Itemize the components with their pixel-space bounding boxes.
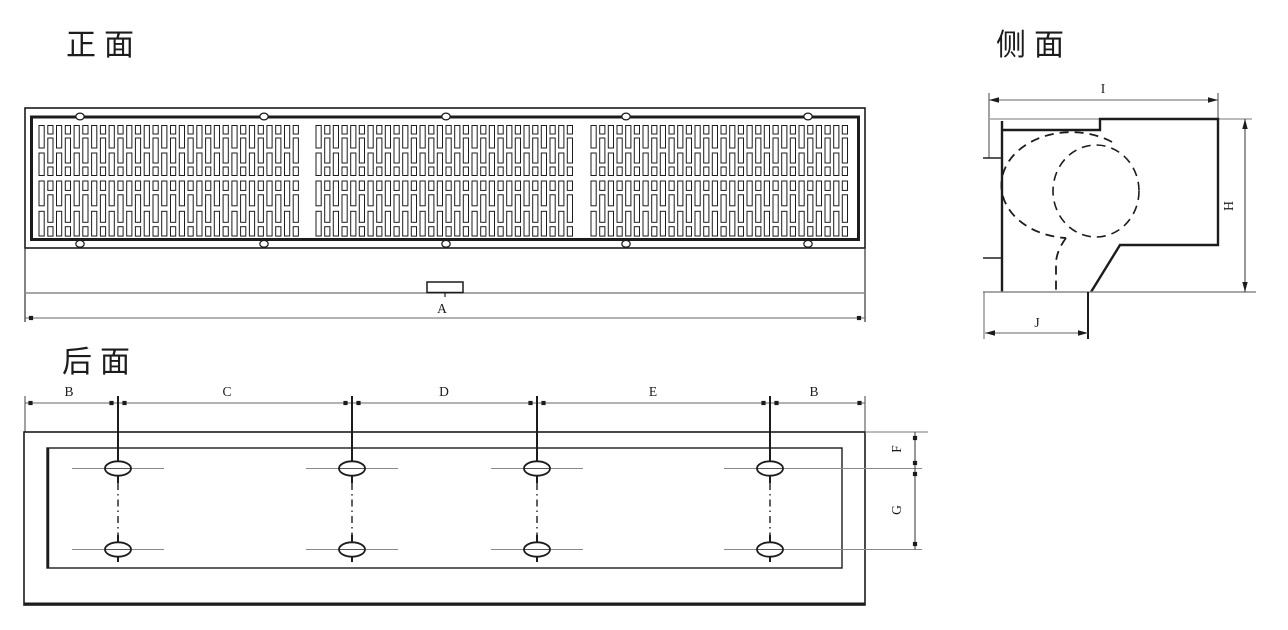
grille-slot [437, 181, 442, 206]
grille-slot [109, 153, 114, 176]
dim-tick [356, 401, 360, 405]
grille-slot [144, 126, 149, 149]
grille-slot [83, 195, 88, 223]
grille-slot [782, 153, 787, 176]
grille-slot [600, 126, 605, 135]
grille-slot [127, 126, 132, 149]
grille-slot [65, 227, 70, 236]
grille-slot [359, 126, 364, 135]
grille-slot [550, 227, 555, 236]
grille-slot [730, 153, 735, 176]
grille-slot [214, 181, 219, 206]
grille-slot [293, 167, 298, 176]
grille-slot [394, 138, 399, 163]
grille-slot [738, 167, 743, 176]
grille-slot [463, 126, 468, 135]
grille-slot [455, 211, 460, 236]
grille-slot [144, 211, 149, 236]
grille-slot [591, 211, 596, 236]
grille-slot [782, 181, 787, 206]
grille-slot [162, 181, 167, 206]
dim-A-label: A [437, 301, 447, 316]
grille-slot [118, 195, 123, 223]
grille-slot [241, 227, 246, 236]
grille-slot [403, 153, 408, 176]
grille-slot [377, 181, 382, 190]
grille-slot [276, 126, 281, 135]
dim-tick [913, 436, 917, 440]
grille-slot [83, 227, 88, 236]
grille-slot [773, 126, 778, 135]
grille-slot [258, 167, 263, 176]
grille-slot [747, 126, 752, 149]
side-impeller-dashed [1053, 145, 1139, 237]
grille-slot [188, 181, 193, 190]
grille-slot [118, 138, 123, 163]
grille-slot [704, 227, 709, 236]
grille-slot [704, 138, 709, 163]
grille-slot [232, 181, 237, 206]
grille-slot [533, 181, 538, 190]
technical-drawing-svg: 正面 A 侧面 I [0, 0, 1288, 630]
grille-slot [834, 181, 839, 206]
grille-slot [626, 181, 631, 206]
grille-slot [738, 227, 743, 236]
grille-slot [394, 227, 399, 236]
grille-slot [541, 153, 546, 176]
grille-slot [144, 181, 149, 206]
dim-J: J [984, 292, 1088, 339]
grille-slot [507, 211, 512, 236]
grille-slot [600, 195, 605, 223]
grille-slot [206, 126, 211, 135]
side-body-outline [1002, 119, 1218, 292]
grille-slot [241, 167, 246, 176]
grille-slot [258, 181, 263, 190]
grille-slot [825, 167, 830, 176]
grille-slot [437, 126, 442, 149]
grille-slot [74, 126, 79, 149]
grille-slot [626, 211, 631, 236]
grille-slot [285, 211, 290, 236]
grille-slot [342, 195, 347, 223]
grille-slot [57, 126, 62, 149]
grille-slot [712, 126, 717, 149]
grille-slot [816, 181, 821, 206]
grille-slot [223, 181, 228, 190]
grille-slot [721, 195, 726, 223]
grille-slot [591, 181, 596, 206]
screw-hole [442, 113, 450, 120]
grille-slot [241, 138, 246, 163]
grille-slot [721, 167, 726, 176]
front-sensor-box [427, 282, 463, 293]
back-mounting-holes [72, 396, 922, 562]
grille-slot [429, 181, 434, 190]
grille-slot [153, 195, 158, 223]
grille-slot [411, 195, 416, 223]
grille-slot [127, 211, 132, 236]
grille-slot [481, 227, 486, 236]
grille-slot [695, 181, 700, 206]
grille-slot [446, 138, 451, 163]
grille-slot [446, 195, 451, 223]
side-outlet-dashed [1056, 238, 1066, 292]
grille-slot [446, 181, 451, 190]
grille-slot [498, 138, 503, 163]
grille-slot [197, 126, 202, 149]
grille-slot [678, 211, 683, 236]
grille-slot [481, 138, 486, 163]
grille-slot [223, 227, 228, 236]
grille-slot [808, 126, 813, 135]
grille-slot [825, 181, 830, 190]
dim-A: A [25, 301, 865, 318]
grille-slot [188, 227, 193, 236]
back-inner-panel [47, 448, 842, 568]
grille-slot [48, 195, 53, 223]
grille-slot [39, 211, 44, 236]
grille-slot [660, 181, 665, 206]
grille-slot [669, 138, 674, 163]
grille-slot [481, 181, 486, 190]
grille-slot [704, 195, 709, 223]
grille-slot [223, 195, 228, 223]
grille-slot [135, 138, 140, 163]
grille-slot [276, 167, 281, 176]
grille-slot [816, 153, 821, 176]
grille-slot [359, 181, 364, 190]
grille-slot [377, 167, 382, 176]
grille-slot [712, 181, 717, 206]
grille-slot [188, 138, 193, 163]
screw-hole [622, 113, 630, 120]
grille-slot [109, 126, 114, 149]
grille-slot [799, 181, 804, 206]
grille-slot [359, 167, 364, 176]
grille-slot [481, 195, 486, 223]
grille-slot [730, 126, 735, 149]
grille-slot [686, 195, 691, 223]
grille-slot [403, 181, 408, 206]
grille-slot [368, 153, 373, 176]
grille-slot [730, 211, 735, 236]
grille-slot [118, 227, 123, 236]
grille-slot [394, 126, 399, 135]
grille-slot [293, 181, 298, 190]
grille-slot [773, 181, 778, 190]
dim-F-label: F [889, 445, 904, 453]
grille-slot [704, 181, 709, 190]
grille-slot [325, 138, 330, 163]
grille-slot [368, 211, 373, 236]
grille-slot [834, 211, 839, 236]
grille-slot [463, 195, 468, 223]
grille-slot [455, 126, 460, 149]
grille-slot [498, 181, 503, 190]
grille-slot [472, 126, 477, 149]
grille-slot [591, 126, 596, 149]
grille-slot [135, 227, 140, 236]
grille-slot [626, 153, 631, 176]
grille-slot [790, 195, 795, 223]
grille-slot [342, 126, 347, 135]
grille-slot [57, 181, 62, 206]
grille-slot [206, 138, 211, 163]
grille-slot [135, 167, 140, 176]
grille-slot [617, 181, 622, 190]
grille-slot [92, 126, 97, 149]
grille-slot [276, 195, 281, 223]
grille-slot [799, 153, 804, 176]
grille-slot [686, 167, 691, 176]
grille-slot [316, 181, 321, 206]
grille-slot [206, 227, 211, 236]
dim-J-label: J [1034, 315, 1039, 330]
grille-slot [267, 153, 272, 176]
grille-slot [669, 195, 674, 223]
grille-slot [686, 138, 691, 163]
grille-slot [92, 153, 97, 176]
grille-slot [533, 126, 538, 135]
grille-slot [660, 153, 665, 176]
grille-slot [74, 181, 79, 206]
grille-slot [206, 181, 211, 190]
grille-slot [808, 138, 813, 163]
grille-slot [162, 153, 167, 176]
grille-slot [515, 227, 520, 236]
dimension-dots [28, 316, 917, 546]
grille-slot [92, 181, 97, 206]
grille-slot [65, 195, 70, 223]
grille-slot [223, 138, 228, 163]
grille-slot [377, 227, 382, 236]
grille-slot [608, 153, 613, 176]
grille-slot [550, 181, 555, 190]
back-view: 后面 B C D E B F G [24, 346, 928, 605]
grille-slot [342, 138, 347, 163]
grille-slot [429, 126, 434, 135]
grille-slot [258, 195, 263, 223]
grille-slot [591, 153, 596, 176]
grille-slot [816, 211, 821, 236]
grille-slot [704, 167, 709, 176]
grille-slot [83, 167, 88, 176]
grille-slot [533, 167, 538, 176]
grille-slot [232, 126, 237, 149]
grille-slot [678, 153, 683, 176]
grille-slot [773, 195, 778, 223]
grille-slot [782, 211, 787, 236]
grille-slot [808, 167, 813, 176]
grille-slot [747, 211, 752, 236]
grille-slot [429, 195, 434, 223]
grille-slot [223, 126, 228, 135]
grille-slot [127, 153, 132, 176]
grille-slot [515, 167, 520, 176]
grille-slot [567, 227, 572, 236]
grille-slot [153, 138, 158, 163]
grille-slot [472, 181, 477, 206]
grille-slot [764, 181, 769, 206]
grille-slot [463, 138, 468, 163]
grille-slot [249, 181, 254, 206]
grille-slot [377, 195, 382, 223]
grille-slot [197, 153, 202, 176]
grille-slot [48, 126, 53, 135]
drawing-canvas: 正面 A 侧面 I [0, 0, 1288, 630]
grille-slot [214, 153, 219, 176]
grille-slot [100, 227, 105, 236]
grille-slot [394, 181, 399, 190]
grille-slot [57, 211, 62, 236]
grille-slot [325, 181, 330, 190]
grille-slot [756, 195, 761, 223]
grille-slot [74, 153, 79, 176]
grille-slot [515, 181, 520, 190]
grille-slot [773, 227, 778, 236]
grille-slot [342, 167, 347, 176]
grille-slot [617, 138, 622, 163]
grille-slot [669, 181, 674, 190]
grille-slot [65, 126, 70, 135]
dim-H-arrow-bottom [1242, 282, 1247, 292]
grille-slot [48, 167, 53, 176]
grille-slot [652, 167, 657, 176]
grille-slot [498, 227, 503, 236]
grille-slot [842, 195, 847, 223]
grille-slot [825, 227, 830, 236]
grille-slot [171, 195, 176, 223]
grille-slot [333, 153, 338, 176]
grille-slot [394, 167, 399, 176]
grille-slot [773, 167, 778, 176]
side-view-title: 侧面 [996, 29, 1072, 62]
dim-tick [541, 401, 545, 405]
grille-slot [325, 227, 330, 236]
grille-slot [834, 153, 839, 176]
grille-slot [385, 181, 390, 206]
side-view: 侧面 I H [983, 29, 1256, 339]
grille-slot [842, 227, 847, 236]
grille-slot [643, 126, 648, 149]
grille-slot [285, 126, 290, 149]
grille-slot [489, 153, 494, 176]
grille-slot [420, 153, 425, 176]
grille-slot [704, 126, 709, 135]
grille-slot [634, 227, 639, 236]
grille-slot [258, 138, 263, 163]
grille-slot [74, 211, 79, 236]
dim-tick [913, 461, 917, 465]
grille-slot [316, 153, 321, 176]
grille-slot [507, 153, 512, 176]
grille-slot [333, 181, 338, 206]
grille-slot [559, 153, 564, 176]
grille-slot [249, 211, 254, 236]
grille-slot [179, 211, 184, 236]
dim-tick [857, 401, 861, 405]
back-outer-panel [24, 432, 865, 605]
grille-slot [437, 153, 442, 176]
grille-slot [617, 167, 622, 176]
grille-slot [118, 181, 123, 190]
grille-slot [515, 138, 520, 163]
grille-slot [179, 181, 184, 206]
grille-slot [643, 153, 648, 176]
dim-tick [29, 316, 33, 320]
grille-slot [652, 227, 657, 236]
grille-slot [600, 167, 605, 176]
grille-slot [293, 138, 298, 163]
grille-slot [764, 126, 769, 149]
dim-E-label: E [649, 384, 657, 399]
grille-slot [489, 181, 494, 206]
grille-slot [686, 126, 691, 135]
dim-I-label: I [1101, 81, 1106, 96]
grille-slot [617, 227, 622, 236]
grille-slot [634, 138, 639, 163]
grille-slot [489, 126, 494, 149]
grille-slot [359, 227, 364, 236]
grille-slot [197, 211, 202, 236]
grille-slot [351, 126, 356, 149]
dim-G-label: G [889, 505, 904, 515]
grille-slot [171, 227, 176, 236]
grille-slot [179, 153, 184, 176]
grille-slot [411, 126, 416, 135]
grille-slot [232, 153, 237, 176]
grille-slot [429, 138, 434, 163]
grille-slot [206, 167, 211, 176]
grille-slot [842, 138, 847, 163]
front-grille-slots [39, 126, 848, 237]
grille-slot [738, 181, 743, 190]
grille-slot [325, 167, 330, 176]
grille-slot [429, 227, 434, 236]
dim-chain-top: B C D E B [25, 384, 865, 432]
grille-slot [249, 153, 254, 176]
grille-slot [446, 126, 451, 135]
grille-slot [258, 126, 263, 135]
grille-slot [652, 138, 657, 163]
front-screw-holes [76, 113, 812, 247]
grille-slot [65, 181, 70, 190]
grille-slot [463, 167, 468, 176]
grille-slot [756, 181, 761, 190]
grille-slot [634, 167, 639, 176]
grille-slot [293, 227, 298, 236]
grille-slot [550, 138, 555, 163]
grille-slot [559, 211, 564, 236]
dim-tick [857, 316, 861, 320]
grille-slot [377, 126, 382, 135]
grille-slot [241, 126, 246, 135]
screw-hole [76, 240, 84, 247]
dim-FG: F G [865, 432, 928, 550]
dim-tick [774, 401, 778, 405]
grille-slot [790, 227, 795, 236]
grille-slot [197, 181, 202, 206]
grille-slot [39, 181, 44, 206]
grille-slot [600, 138, 605, 163]
grille-slot [524, 126, 529, 149]
grille-slot [325, 195, 330, 223]
grille-slot [541, 211, 546, 236]
grille-slot [276, 138, 281, 163]
dim-I-arrow-right [1208, 97, 1218, 103]
grille-slot [626, 126, 631, 149]
